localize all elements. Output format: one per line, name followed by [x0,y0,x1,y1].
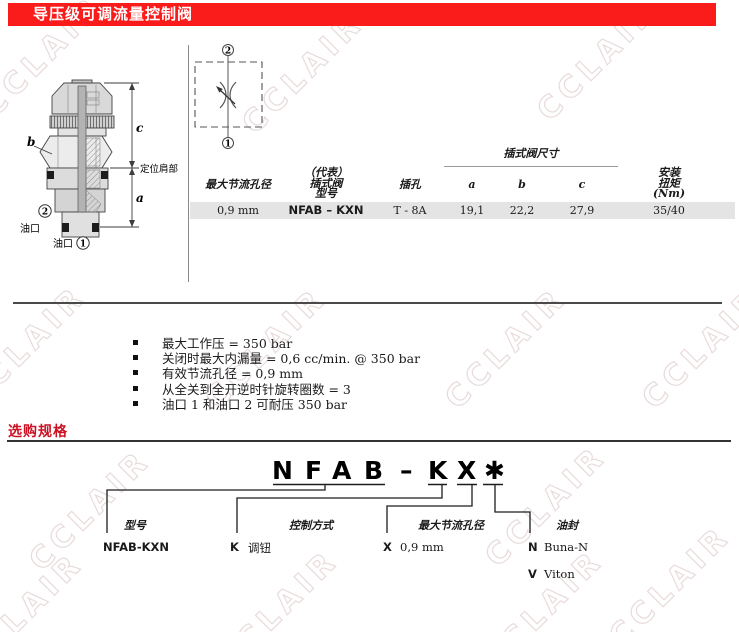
branch-line-control [237,485,442,533]
watermark-text: CCLAIR [580,496,739,632]
watermark-text: CCLAIR [0,420,184,604]
model-code-char: X [457,456,476,485]
cell-dim-c: 27,9 [552,203,612,218]
model-code-char: K [428,456,447,485]
svg-text:2: 2 [42,208,48,218]
dim-label-a: a [136,191,144,205]
branch-label-seal: 油封 [556,517,578,533]
spec-bullet: 油口 1 和油口 2 可耐压 350 bar [133,396,420,411]
col-header-b: b [492,180,552,191]
cell-torque: 35/40 [639,203,699,218]
square-bullet-icon [133,340,138,345]
model-code-char: B [364,456,383,485]
value-orifice-desc: 0,9 mm [400,540,444,554]
watermark-text: CCLAIR [416,258,600,442]
model-code-char: F [305,456,322,485]
adjustability-arrow [216,86,235,104]
square-bullet-icon [133,370,138,375]
branch-label-control: 控制方式 [289,517,333,533]
col-header-torque: 安装 扭矩 (Nm) [629,168,709,200]
table-group-header-line [444,166,618,167]
symbol-port-2: 2 [225,46,231,56]
spec-bullet-list: 最大工作压 = 350 bar 关闭时最大内漏量 = 0,6 cc/min. @… [133,335,420,411]
model-code-char: – [400,456,413,485]
symbol-port-1: 1 [225,139,231,149]
square-bullet-icon [133,355,138,360]
branch-label-orifice: 最大节流孔径 [418,517,484,533]
value-seal-v-desc: Viton [544,567,575,581]
port2-callout: 2 油口 [20,205,51,235]
shoulder-label: 定位肩部 [140,163,178,175]
svg-text:油口: 油口 [20,222,40,235]
model-code-char: N [272,456,293,485]
square-bullet-icon [133,401,138,406]
cell-model: NFAB – KXN [266,203,386,218]
section-underline [7,440,731,442]
value-seal-n-desc: Buna-N [544,540,588,554]
value-control-key: K [230,540,239,554]
branch-label-model: 型号 [124,517,146,533]
value-seal-n-key: N [528,540,538,554]
value-orifice-key: X [383,540,392,554]
value-model-code: NFAB-KXN [103,540,169,554]
port1-callout: 油口 1 [53,237,89,250]
dim-label-c: c [136,121,144,135]
value-seal-v-key: V [528,567,537,581]
hydraulic-symbol: 2 1 [190,42,270,150]
cell-dim-b: 22,2 [492,203,552,218]
datasheet-page: CCLAIRCCLAIRCCLAIRCCLAIRCCLAIRCCLAIRCCLA… [0,0,739,632]
value-control-desc: 调钮 [248,540,271,556]
table-group-header: 插式阀尺寸 [444,149,618,160]
horizontal-separator [13,302,722,304]
valve-cross-section-drawing: c a 定位肩部 b 2 油口 油口 1 [8,42,190,292]
model-code-char: A [332,456,351,485]
svg-text:油口: 油口 [53,237,73,250]
dim-label-b: b [27,135,35,149]
branch-line-seal [495,485,530,533]
square-bullet-icon [133,386,138,391]
model-code-char: ✱ [484,456,505,485]
col-header-cavity: 插孔 [380,180,440,191]
col-header-c: c [552,180,612,191]
cell-cavity: T - 8A [380,203,440,218]
section-title-ordering: 选购规格 [8,421,68,441]
page-title: 导压级可调流量控制阀 [33,3,193,26]
col-header-model: （代表） 插式阀 型号 [276,168,376,200]
svg-text:1: 1 [80,240,86,250]
watermark-text: CCLAIR [0,523,117,632]
watermark-text: CCLAIR [613,258,739,442]
watermark-text: CCLAIR [188,520,372,632]
